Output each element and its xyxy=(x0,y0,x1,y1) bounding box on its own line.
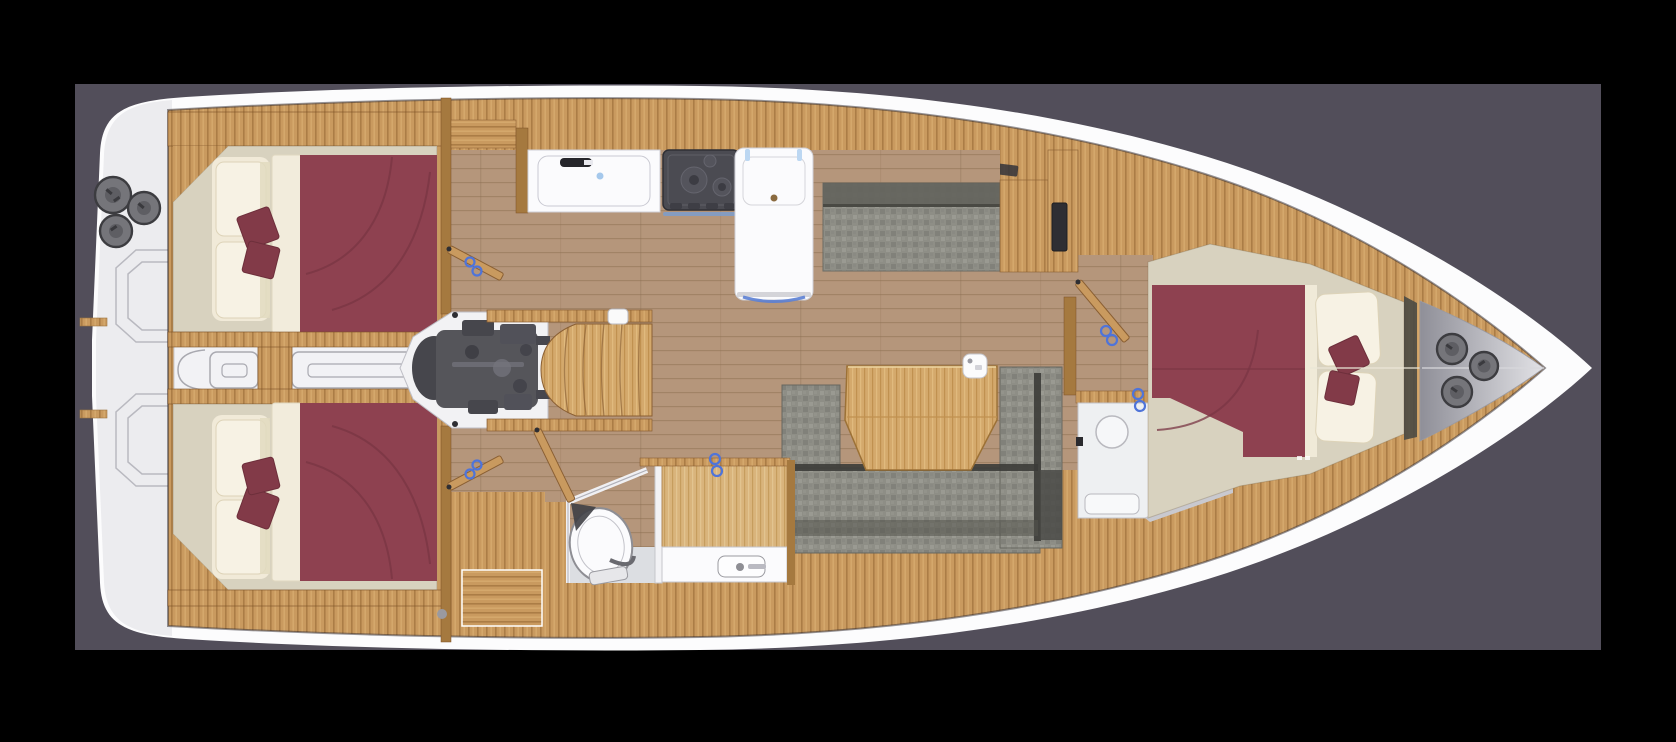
hinge-dot xyxy=(447,247,452,252)
deck-panel xyxy=(448,120,516,148)
sofa-edging xyxy=(1034,373,1041,541)
winch-icon xyxy=(1442,377,1472,407)
wall-fitting xyxy=(1076,437,1083,446)
galley-counter xyxy=(528,150,660,212)
cup-holder xyxy=(963,354,987,378)
head-partition xyxy=(655,464,662,583)
floor-plan-stage xyxy=(0,0,1676,742)
settee-shadow-line xyxy=(823,204,1000,207)
bed-foot-dot xyxy=(1297,456,1302,460)
shower-tray xyxy=(1085,494,1139,514)
bed-sheet xyxy=(1305,285,1317,457)
winch-icon xyxy=(100,215,132,247)
hinge-dot xyxy=(452,421,458,427)
galley-wall xyxy=(516,128,528,213)
settee-backrest xyxy=(823,183,1000,204)
bed-foot-dot xyxy=(1305,456,1310,460)
deck-locker-panel xyxy=(462,570,542,626)
tv-panel-icon xyxy=(1052,203,1067,251)
hinge-dot xyxy=(1076,280,1081,285)
sofa-arm-left xyxy=(782,385,840,473)
cabin-wood-band xyxy=(168,590,447,606)
transom-step xyxy=(80,410,107,418)
bed-sheet xyxy=(272,403,302,581)
deck-fitting xyxy=(437,609,447,619)
double-berth xyxy=(300,155,437,333)
cabin-wood-band xyxy=(168,332,447,347)
cabin-wood-band xyxy=(168,112,447,146)
winch-icon xyxy=(1470,352,1498,380)
faucet-tip xyxy=(584,160,593,165)
sofa-front-shadow xyxy=(792,520,1038,536)
aft-cabin-starboard xyxy=(168,389,447,606)
double-berth xyxy=(300,403,437,581)
steps-body xyxy=(541,324,652,416)
dining-table xyxy=(845,366,997,470)
floor-plan-svg xyxy=(0,0,1676,742)
hinge-dot xyxy=(535,428,540,433)
walkway-wood-edge xyxy=(1064,297,1076,395)
transom-step xyxy=(80,318,107,326)
basin-spout xyxy=(748,564,766,569)
head-side-wall xyxy=(787,460,795,585)
throw-cushion xyxy=(1324,370,1360,406)
bulkhead-wall xyxy=(441,98,451,314)
slat-panel xyxy=(1000,180,1048,272)
hinge-dot xyxy=(452,312,458,318)
throw-cushion xyxy=(242,241,281,280)
hinge-dot xyxy=(447,485,452,490)
bed-sheet xyxy=(272,155,302,333)
aft-cabin-port xyxy=(168,112,447,347)
shower-floor xyxy=(662,462,787,547)
winch-icon xyxy=(1437,334,1467,364)
winch-icon xyxy=(128,192,160,224)
throw-cushion xyxy=(242,457,281,496)
deck-hatch-small xyxy=(608,309,628,324)
drain-dot xyxy=(597,173,604,180)
stove xyxy=(663,150,739,216)
step-rail xyxy=(487,419,652,431)
washbasin-round xyxy=(1096,416,1128,448)
winch-icon xyxy=(95,177,131,213)
cabin-wood-band xyxy=(168,389,447,404)
basin-faucet xyxy=(736,563,744,571)
corridor-wood-block xyxy=(258,345,292,393)
sofa-corner-shadow xyxy=(1040,470,1062,540)
galley-island xyxy=(735,148,813,302)
